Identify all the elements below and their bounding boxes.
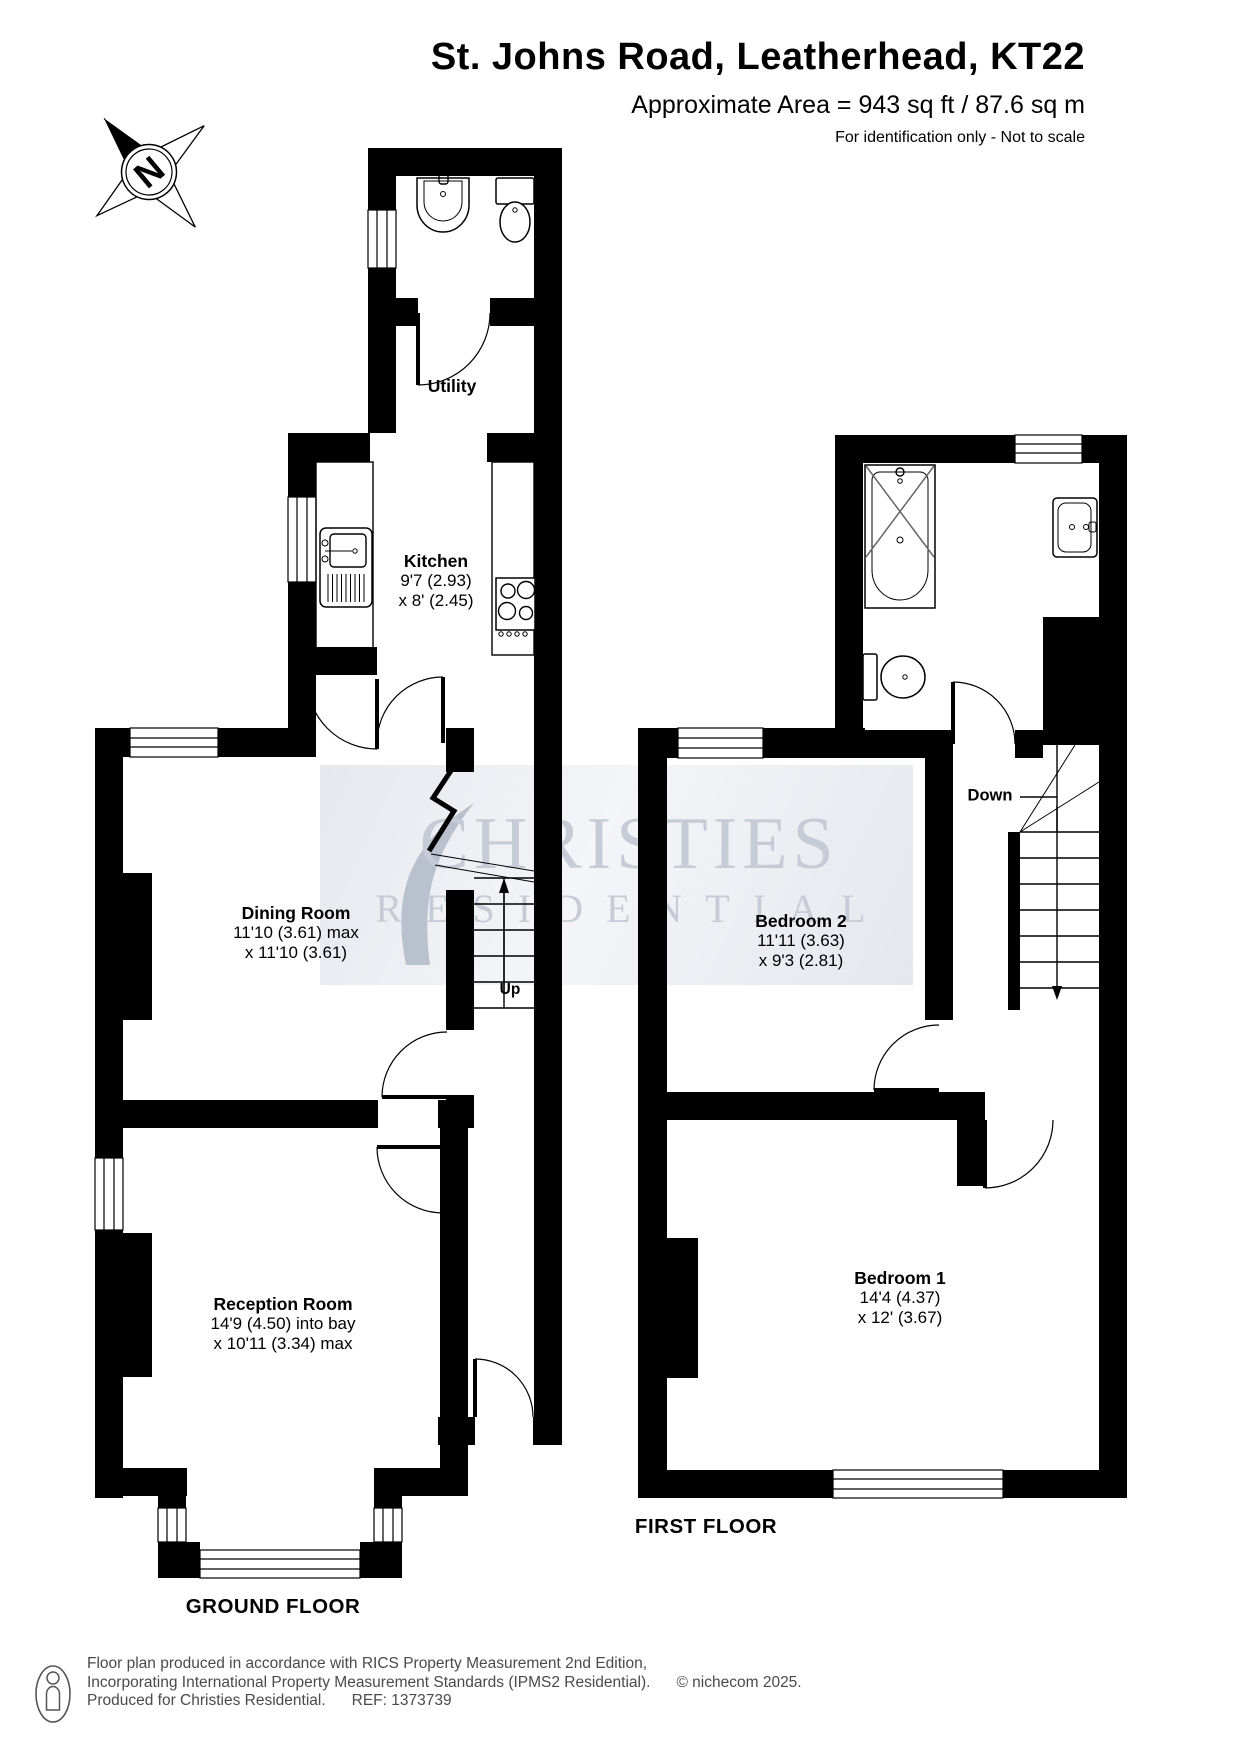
bedroom1-label: Bedroom 1 14'4 (4.37) x 12' (3.67)	[854, 1268, 945, 1328]
floorplan-page: N	[0, 0, 1241, 1755]
footer-ref: REF: 1373739	[352, 1692, 452, 1711]
footer-line3: Produced for Christies Residential.	[87, 1692, 326, 1711]
bathroom-toilet-icon	[863, 654, 925, 700]
bay-window-right	[374, 1508, 402, 1542]
reception-side-window	[95, 1158, 123, 1230]
bedroom1-door	[985, 1120, 1053, 1188]
dining-door	[382, 1032, 447, 1097]
bathroom-sink-icon	[1053, 498, 1097, 557]
first-floor-label: FIRST FLOOR	[635, 1515, 777, 1539]
dining-room-label: Dining Room 11'10 (3.61) max x 11'10 (3.…	[233, 903, 359, 963]
reception-room-label: Reception Room 14'9 (4.50) into bay x 10…	[210, 1294, 355, 1354]
bedroom1-window	[833, 1470, 1003, 1498]
front-door	[475, 1359, 533, 1417]
footer-copyright: © nichecom 2025.	[676, 1674, 801, 1693]
hall-door	[377, 677, 443, 743]
compass-north-icon: N	[52, 72, 251, 271]
cloakroom-door	[418, 313, 490, 385]
footer: Floor plan produced in accordance with R…	[33, 1655, 802, 1733]
bedroom2-door	[874, 1025, 939, 1090]
person-scale-icon	[33, 1655, 73, 1733]
reception-door	[377, 1147, 443, 1213]
cloakroom-toilet-icon	[496, 178, 534, 242]
kitchen-door	[307, 679, 377, 749]
stairs-down-label: Down	[968, 787, 1013, 806]
bedroom2-window	[678, 728, 763, 758]
footer-text: Floor plan produced in accordance with R…	[87, 1655, 802, 1711]
utility-label: Utility	[428, 376, 477, 396]
page-title: St. Johns Road, Leatherhead, KT22	[431, 36, 1085, 79]
bathroom-door	[953, 682, 1015, 744]
bay-window-left	[158, 1508, 186, 1542]
scale-disclaimer: For identification only - Not to scale	[431, 129, 1085, 147]
ground-floor-label: GROUND FLOOR	[186, 1595, 361, 1619]
staircase-down	[1020, 745, 1099, 1000]
watermark-brand-text: CHRISTIES	[419, 807, 838, 881]
approximate-area: Approximate Area = 943 sq ft / 87.6 sq m	[431, 91, 1085, 120]
bathroom-window	[1015, 435, 1082, 463]
cloakroom-basin-icon	[417, 172, 469, 232]
stairs-up-label: Up	[500, 981, 521, 999]
footer-line1: Floor plan produced in accordance with R…	[87, 1655, 802, 1674]
kitchen-sink-icon	[320, 528, 372, 607]
hob-icon	[496, 578, 535, 636]
dining-window	[130, 728, 218, 757]
utility-window	[368, 210, 396, 268]
bay-window-front	[200, 1550, 360, 1578]
kitchen-label: Kitchen 9'7 (2.93) x 8' (2.45)	[398, 551, 473, 611]
footer-line2: Incorporating International Property Mea…	[87, 1674, 650, 1693]
bedroom2-label: Bedroom 2 11'11 (3.63) x 9'3 (2.81)	[755, 911, 846, 971]
bathtub-icon	[865, 465, 935, 608]
kitchen-window	[288, 497, 316, 582]
header: St. Johns Road, Leatherhead, KT22 Approx…	[431, 36, 1085, 147]
